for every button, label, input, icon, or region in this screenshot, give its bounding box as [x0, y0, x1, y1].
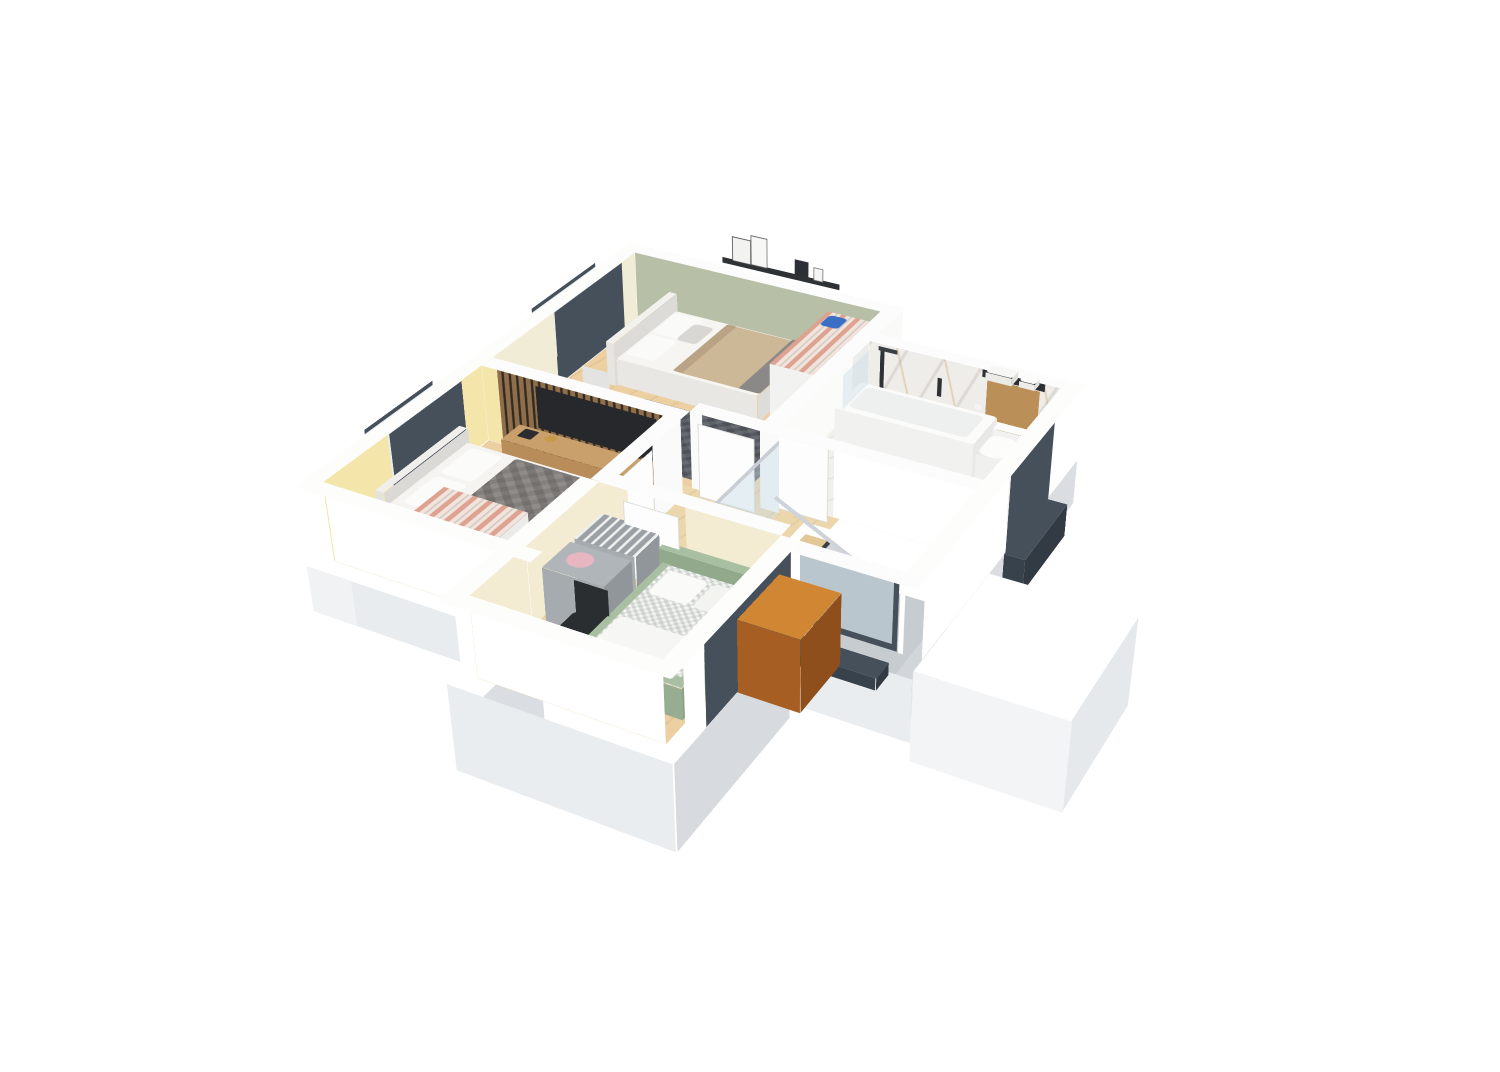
- tub-faucet: [937, 377, 942, 396]
- floor-plan-render: [0, 0, 1500, 1072]
- shelf-frame-2: [751, 235, 768, 269]
- iso-scene: [185, 289, 1270, 906]
- slab-side-master-left: [306, 566, 357, 626]
- shelf-deco-small: [813, 267, 823, 282]
- shelf-deco-dark: [794, 259, 808, 278]
- shelf-frame-1: [732, 236, 752, 265]
